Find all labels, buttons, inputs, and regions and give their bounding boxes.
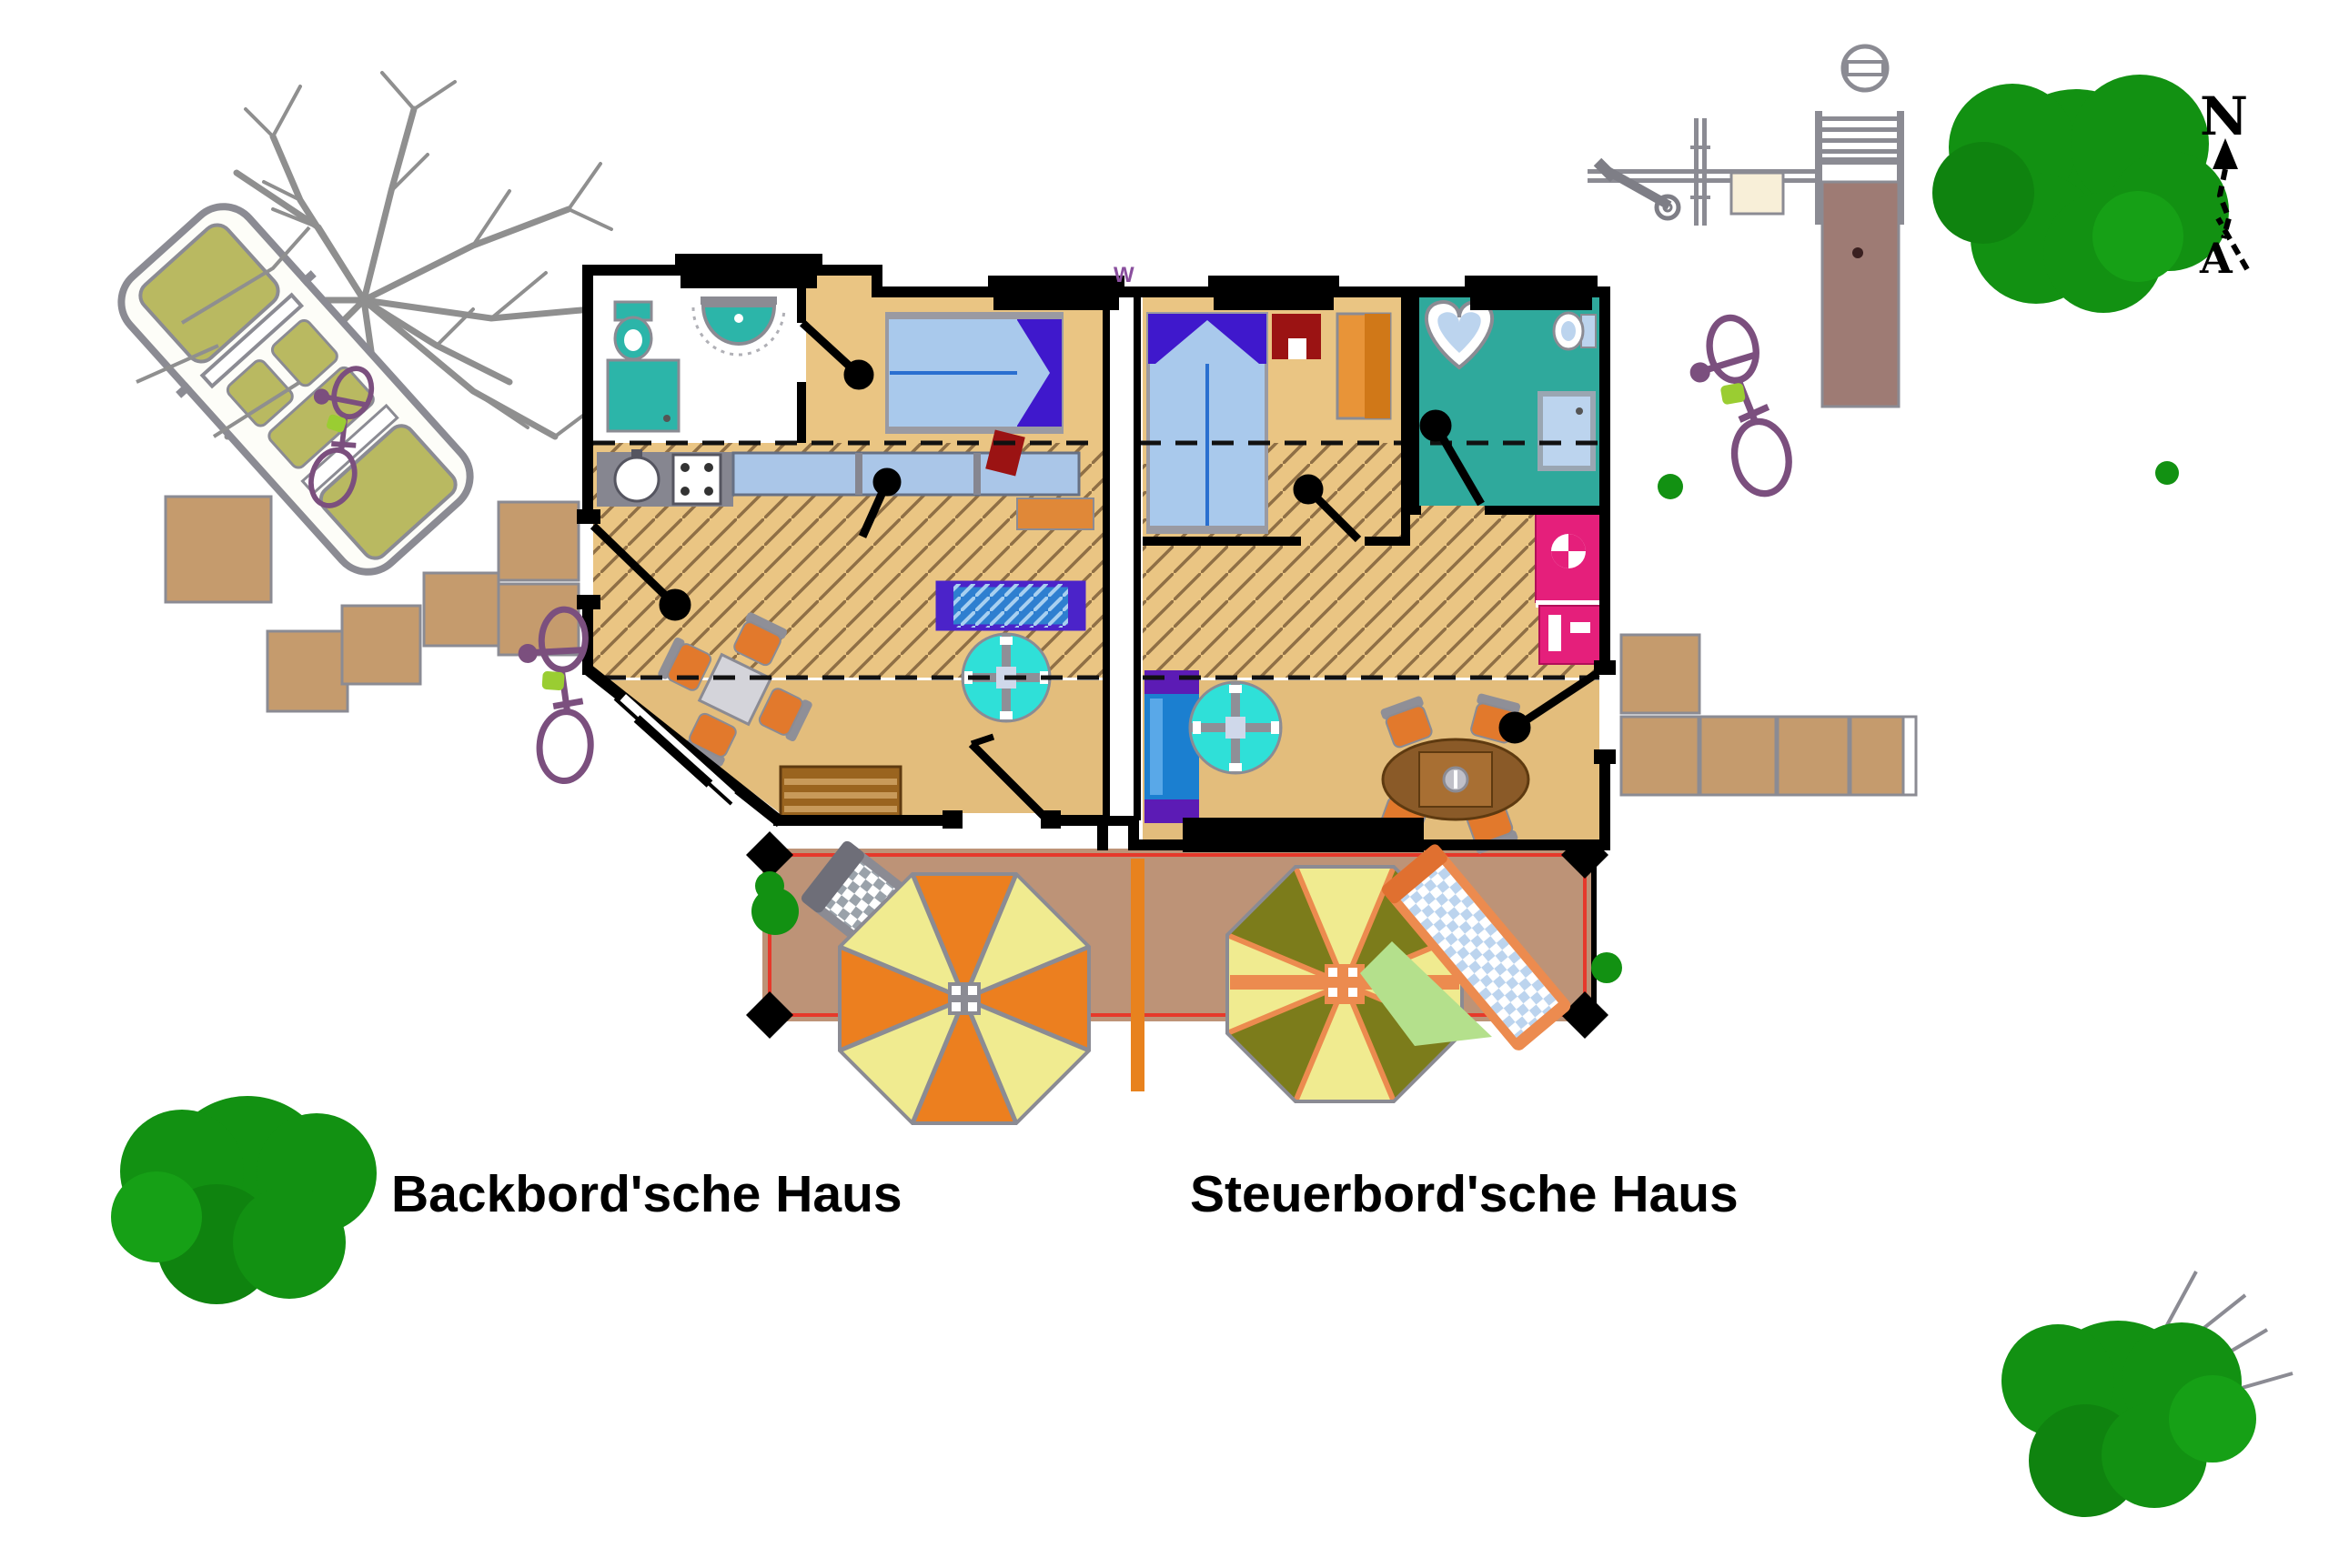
kitchen-sink-icon: [615, 457, 659, 501]
compass-tail-label: A: [2199, 234, 2233, 283]
stepping-stones-right: [1621, 635, 1916, 795]
party-wall: [1103, 297, 1141, 820]
cabinet-orange-icon: [1337, 314, 1390, 418]
tv-icon: [1272, 314, 1321, 359]
toilet-icon: [615, 302, 651, 359]
tree-bottom-left-icon: [111, 1096, 377, 1304]
bicycle-icon: [1685, 312, 1794, 503]
label-left-house: Backbord'sche Haus: [391, 1165, 902, 1223]
house-plan: W: [577, 254, 1616, 855]
bathroom-right: [1410, 297, 1599, 506]
site-plan-canvas: W: [0, 0, 2329, 1568]
wall-mark-label: W: [1114, 263, 1134, 287]
stove-icon: [673, 455, 721, 504]
kitchen-window-band: [733, 453, 1079, 495]
bed-right-icon: [1148, 314, 1266, 532]
label-right-house: Steuerbord'sche Haus: [1190, 1165, 1739, 1223]
garden-path: [1822, 182, 1899, 407]
tree-bottom-right-icon: [2001, 1271, 2293, 1517]
utility-area: [1588, 46, 1904, 407]
car-icon: [99, 186, 492, 594]
terrace-divider: [1131, 859, 1144, 1091]
compass-n-label: N: [2200, 85, 2248, 147]
sofa-right-icon: [1144, 670, 1199, 823]
shower-right-icon: [1538, 391, 1596, 471]
wardrobe-magenta-icon: [1536, 509, 1601, 664]
bed-left-icon: [887, 314, 1062, 433]
site-plan: W: [0, 0, 2329, 1568]
desk-icon: [939, 584, 1083, 628]
toilet-right-icon: [1554, 313, 1596, 349]
glass-table-right-icon: [1190, 682, 1281, 773]
sideboard-icon: [781, 767, 901, 819]
tree-top-right-icon: [1932, 75, 2229, 313]
umbrella-left-icon: [840, 874, 1089, 1123]
bench-orange-icon: [1017, 498, 1094, 529]
sign-board: [1731, 173, 1783, 214]
